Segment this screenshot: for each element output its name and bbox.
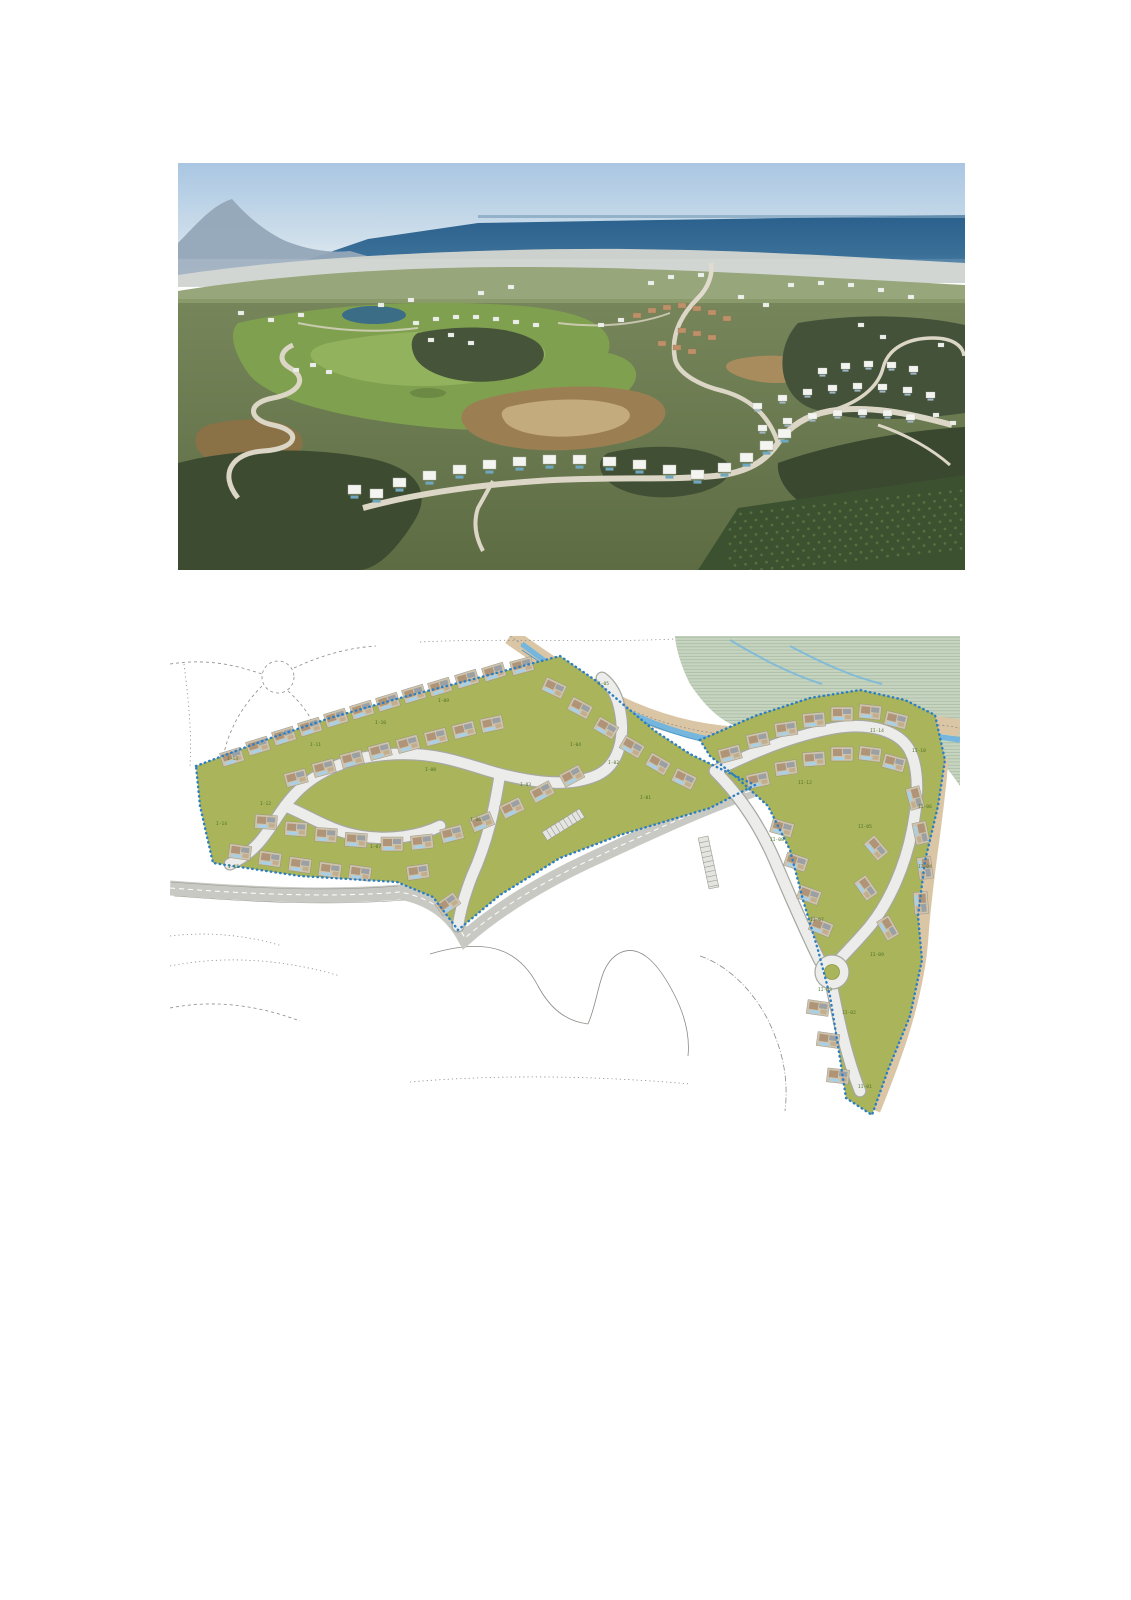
plot-label: I-04 [570, 742, 581, 748]
plot-label: II-06 [918, 804, 932, 810]
document-page: I-13I-12I-14I-15I-11I-10I-09I-08I-07I-06… [0, 0, 1131, 1600]
plot-label: II-10 [912, 748, 926, 754]
plot-label: I-10 [375, 720, 386, 726]
plot-label: I-05 [598, 681, 609, 687]
site-plan-canvas: I-13I-12I-14I-15I-11I-10I-09I-08I-07I-06… [170, 636, 960, 1118]
plot-label: I-03 [520, 782, 531, 788]
plot-label: I-12 [260, 801, 271, 807]
plot-label: II-02 [842, 1010, 856, 1016]
plot-label: I-07 [370, 844, 381, 850]
lake [342, 306, 406, 324]
plot-label: I-14 [216, 821, 227, 827]
plot-label: II-14 [870, 728, 884, 734]
aerial-photo [178, 163, 965, 570]
plot-label: I-02 [608, 760, 619, 766]
plot-label: II-09 [870, 952, 884, 958]
haze [178, 259, 965, 299]
sea-horizon-haze [478, 215, 965, 218]
plot-label: II-07 [810, 917, 824, 923]
plot-label: I-11 [310, 742, 321, 748]
plot-label: I-13 [227, 756, 238, 762]
plot-label: II-03 [818, 987, 832, 993]
plot-label: II-01 [858, 1084, 872, 1090]
plot-label: II-12 [798, 780, 812, 786]
plot-label: I-15 [228, 864, 239, 870]
plot-label: I-01 [640, 795, 651, 801]
plot-label: I-08 [425, 767, 436, 773]
aerial-photo-canvas [178, 163, 965, 570]
plot-label: II-08 [770, 837, 784, 843]
plot-label: II-05 [858, 824, 872, 830]
plot-label: II-04 [918, 864, 932, 870]
site-plan: I-13I-12I-14I-15I-11I-10I-09I-08I-07I-06… [170, 636, 960, 1118]
plot-label: I-09 [438, 698, 449, 704]
plot-label: I-06 [470, 817, 481, 823]
